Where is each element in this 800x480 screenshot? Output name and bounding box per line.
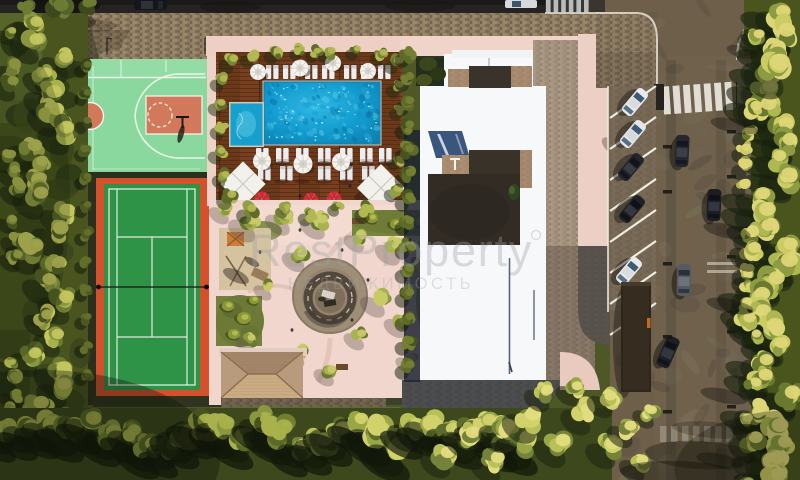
svg-text:НЕДВИЖИМОСТЬ: НЕДВИЖИМОСТЬ <box>288 275 474 293</box>
svg-text:RestProperty: RestProperty <box>249 225 533 276</box>
